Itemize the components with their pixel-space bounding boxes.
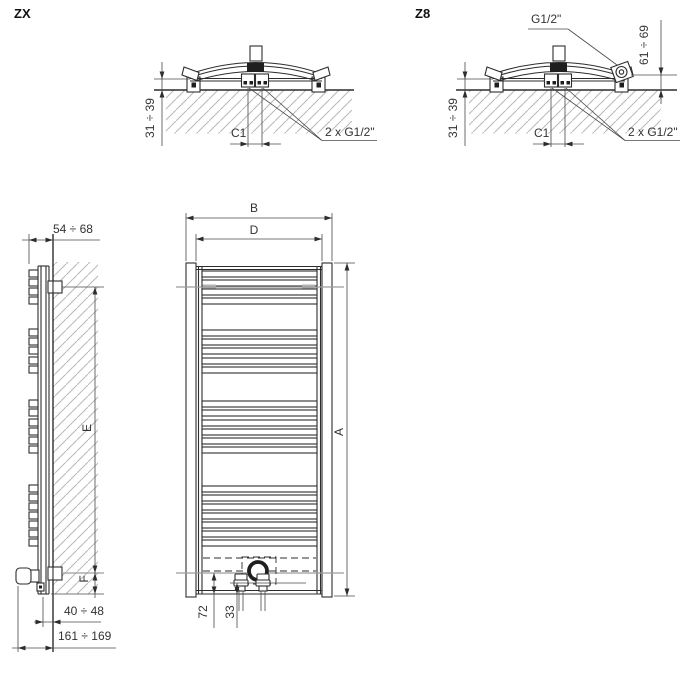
dim-f: F (77, 575, 91, 582)
bottom-bracket (48, 567, 62, 580)
dim-b: B (250, 201, 258, 215)
dim-61-69: 61 ÷ 69 (637, 25, 651, 65)
radiator-rungs (202, 271, 317, 546)
z8-dim-connections: 2 x G1/2" (628, 125, 678, 139)
dim-a: A (332, 428, 346, 436)
z8-dim-c1: C1 (534, 126, 549, 140)
zx-dim-31-39: 31 ÷ 39 (143, 98, 157, 138)
zx-dim-connections: 2 x G1/2" (325, 125, 375, 139)
side-view (12, 234, 116, 652)
dim-33: 33 (223, 605, 237, 618)
valve-right (256, 574, 270, 611)
zx-view-label: ZX (14, 7, 31, 21)
technical-drawing-page: ZX Z8 G1/2" 61 ÷ 69 31 ÷ 39 31 ÷ 39 C1 C… (0, 0, 700, 673)
valve-body (16, 568, 31, 584)
dim-161-169: 161 ÷ 169 (58, 629, 111, 643)
front-view (176, 213, 355, 628)
dim-40-48: 40 ÷ 48 (64, 604, 104, 618)
drawing-canvas (0, 0, 700, 673)
dim-g12-top: G1/2" (531, 12, 561, 26)
dim-54-68: 54 ÷ 68 (53, 222, 93, 236)
tube-ends (29, 270, 38, 546)
z8-view-label: Z8 (415, 7, 430, 21)
dim-e: E (80, 424, 94, 432)
zx-dim-c1: C1 (231, 126, 246, 140)
top-bracket (48, 281, 62, 293)
z8-dim-31-39: 31 ÷ 39 (446, 98, 460, 138)
dim-72: 72 (196, 605, 210, 618)
dim-d: D (250, 223, 259, 237)
